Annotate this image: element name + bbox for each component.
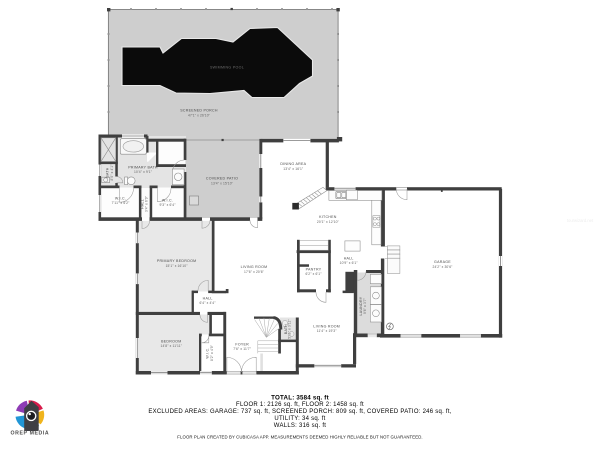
svg-text:HALL: HALL — [203, 297, 213, 301]
svg-text:FLOOR 1: 2126 sq. ft, FLOOR 2:: FLOOR 1: 2126 sq. ft, FLOOR 2: 1458 sq. … — [236, 402, 364, 408]
svg-text:UTILITY: 34 sq. ft: UTILITY: 34 sq. ft — [274, 416, 325, 422]
svg-text:W.I.C.: W.I.C. — [162, 199, 173, 203]
svg-text:9'3" x 6'4": 9'3" x 6'4" — [159, 203, 176, 207]
svg-text:EXCLUDED AREAS: GARAGE: 737 sq: EXCLUDED AREAS: GARAGE: 737 sq. ft, SCRE… — [148, 409, 451, 415]
svg-text:9'6" x 3'7": 9'6" x 3'7" — [363, 297, 367, 314]
svg-text:GARAGE: GARAGE — [434, 260, 451, 264]
svg-text:LIVING ROOM: LIVING ROOM — [313, 325, 340, 329]
svg-text:WALLS: 316 sq. ft: WALLS: 316 sq. ft — [274, 423, 326, 429]
svg-text:PRIMARY BEDROOM: PRIMARY BEDROOM — [157, 259, 197, 263]
svg-text:FLOOR PLAN CREATED BY CUBICASA: FLOOR PLAN CREATED BY CUBICASA APP. MEAS… — [177, 434, 422, 439]
svg-text:47'1" x 26'10": 47'1" x 26'10" — [188, 114, 211, 118]
svg-text:SCREENED PORCH: SCREENED PORCH — [180, 109, 218, 113]
svg-text:KITCHEN: KITCHEN — [319, 215, 337, 219]
svg-text:20'1" x 12'10": 20'1" x 12'10" — [317, 220, 340, 224]
svg-text:PRIMARY BATH: PRIMARY BATH — [128, 165, 158, 169]
svg-text:24'2" x 30'6": 24'2" x 30'6" — [432, 265, 453, 269]
svg-text:SWIMMING POOL: SWIMMING POOL — [210, 66, 244, 70]
svg-text:6'2" x 6'1": 6'2" x 6'1" — [305, 272, 322, 276]
svg-text:13'4" x 16'1": 13'4" x 16'1" — [283, 167, 304, 171]
svg-text:OREP MEDIA: OREP MEDIA — [11, 430, 50, 436]
svg-text:HALL: HALL — [344, 257, 354, 261]
svg-text:W.I.C.: W.I.C. — [115, 197, 126, 201]
svg-text:11'4" x 19'3": 11'4" x 19'3" — [317, 329, 337, 333]
svg-text:8'2" x 4'9": 8'2" x 4'9" — [210, 344, 214, 361]
svg-text:15'1" x 16'10": 15'1" x 16'10" — [166, 264, 189, 268]
svg-text:TOTAL: 3584 sq. ft: TOTAL: 3584 sq. ft — [271, 394, 329, 401]
svg-text:7'6" x 11'7": 7'6" x 11'7" — [233, 347, 251, 351]
svg-text:8'0" x 4'1": 8'0" x 4'1" — [110, 164, 114, 181]
svg-text:tourwizard.net: tourwizard.net — [567, 218, 594, 223]
svg-text:14'8" x 11'11": 14'8" x 11'11" — [161, 344, 183, 348]
svg-text:3'4" x 6'9": 3'4" x 6'9" — [145, 195, 149, 212]
svg-text:10'9" x 6'1": 10'9" x 6'1" — [340, 261, 359, 265]
svg-text:6'4" x 4'4": 6'4" x 4'4" — [200, 301, 217, 305]
svg-text:17'6" x 20'6": 17'6" x 20'6" — [244, 270, 265, 274]
svg-text:FOYER: FOYER — [235, 343, 249, 347]
svg-text:BEDROOM: BEDROOM — [161, 340, 181, 344]
svg-text:COVERED PATIO: COVERED PATIO — [206, 177, 238, 181]
svg-text:LIVING ROOM: LIVING ROOM — [241, 265, 268, 269]
svg-text:7'11" x 6'2": 7'11" x 6'2" — [112, 201, 130, 205]
svg-text:5'11" x 3'11": 5'11" x 3'11" — [288, 319, 292, 339]
svg-text:DINING AREA: DINING AREA — [280, 162, 306, 166]
svg-text:13'4" x 15'10": 13'4" x 15'10" — [211, 182, 234, 186]
svg-text:10'4" x 9'1": 10'4" x 9'1" — [134, 170, 153, 174]
svg-text:PANTRY: PANTRY — [306, 267, 322, 271]
